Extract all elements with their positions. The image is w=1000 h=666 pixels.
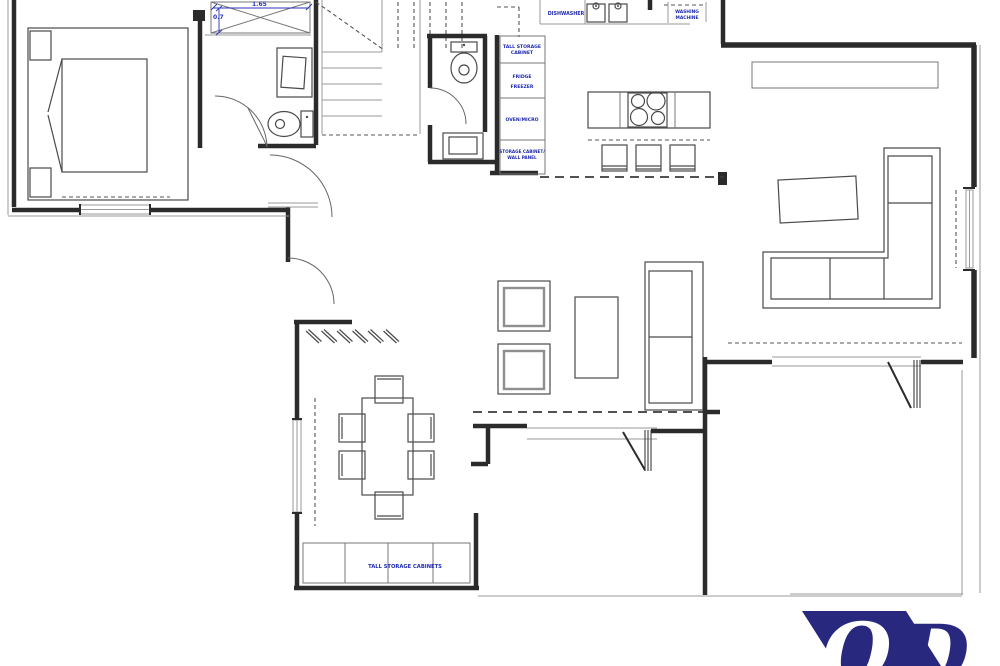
bathroom-walls bbox=[258, 0, 316, 146]
dining-door-arc bbox=[288, 258, 334, 304]
tall-storage-cabinets-row: TALL STORAGE CABINETS bbox=[303, 543, 470, 583]
chair bbox=[408, 414, 434, 442]
duvet bbox=[62, 59, 147, 172]
bar-stools bbox=[602, 145, 695, 171]
wc-walls bbox=[427, 36, 497, 162]
two-seat-sofa bbox=[645, 262, 703, 410]
threshold bbox=[268, 203, 318, 207]
sideboard bbox=[752, 62, 938, 88]
logo: O D bbox=[790, 594, 969, 666]
label-fridge-1: FRIDGE bbox=[512, 74, 531, 80]
pillow bbox=[30, 31, 51, 60]
bedroom-window bbox=[80, 204, 150, 215]
floor-plan-drawing: 1.65 0.7 bbox=[0, 0, 1000, 666]
toilet-ensuite bbox=[268, 111, 313, 137]
pillow bbox=[30, 168, 51, 197]
chair bbox=[339, 414, 365, 442]
wall-corner-block bbox=[718, 172, 727, 185]
label-storage-wall-1: STORAGE CABINET/ bbox=[499, 149, 545, 154]
ensuite-bathroom: 1.65 0.7 bbox=[205, 0, 316, 147]
living-room-walls bbox=[721, 45, 976, 358]
coffee-table bbox=[778, 176, 858, 223]
living-room bbox=[703, 45, 980, 593]
label-fridge-2: FREEZER bbox=[511, 84, 534, 90]
vanity-basin bbox=[277, 48, 312, 97]
lounge-seating bbox=[473, 262, 706, 412]
dining-walls bbox=[294, 322, 488, 590]
staircase bbox=[316, 0, 462, 135]
radiator-hatching bbox=[306, 330, 399, 344]
logo-letter-o: O bbox=[822, 605, 892, 666]
armchair bbox=[498, 344, 550, 394]
open-door-leaf bbox=[888, 362, 911, 408]
hall-door-arc bbox=[270, 155, 332, 217]
side-table bbox=[575, 297, 618, 378]
wc-door bbox=[430, 88, 466, 124]
bedroom bbox=[8, 0, 289, 262]
label-dishwasher: DISHWASHER bbox=[548, 11, 585, 17]
logo-letter-d: D bbox=[898, 607, 969, 666]
wall-notch bbox=[193, 10, 205, 21]
stair-treads bbox=[322, 52, 382, 116]
hall bbox=[268, 155, 334, 304]
bedroom-wall-face-lines bbox=[8, 0, 289, 216]
chair bbox=[339, 451, 365, 479]
corner-sofa bbox=[763, 148, 940, 308]
kitchen: DISHWASHER WASHING MACHINE TALL STORAGE … bbox=[490, 0, 727, 185]
dining-area: TALL STORAGE CABINETS bbox=[292, 322, 488, 590]
patio-bifold-doors bbox=[703, 357, 963, 408]
chair bbox=[375, 492, 403, 519]
wc bbox=[427, 36, 497, 162]
dining-table bbox=[362, 398, 413, 495]
bedroom-walls bbox=[12, 0, 288, 262]
wc-basin bbox=[443, 133, 483, 159]
tall-units-column: TALL STORAGE CABINET FRIDGE FREEZER OVEN… bbox=[499, 36, 545, 174]
label-storage-wall-2: WALL PANEL bbox=[507, 155, 537, 160]
kitchen-island bbox=[588, 92, 710, 140]
patio-sliding-door bbox=[473, 426, 706, 471]
label-tall-storage-2: CABINET bbox=[511, 50, 534, 56]
label-washing-machine-2: MACHINE bbox=[676, 15, 699, 21]
chair bbox=[375, 376, 403, 403]
double-bed bbox=[28, 28, 188, 200]
floor-plan-page: 1.65 0.7 bbox=[0, 0, 1000, 666]
living-room-window bbox=[956, 188, 975, 270]
chair bbox=[408, 451, 434, 479]
label-oven-micro: OVEN/MICRO bbox=[505, 117, 538, 123]
dim-shower-width: 1.65 bbox=[252, 1, 267, 8]
label-tall-storage-cabinets: TALL STORAGE CABINETS bbox=[368, 564, 442, 570]
toilet-wc bbox=[451, 42, 477, 83]
label-washing-machine-1: WASHING bbox=[675, 9, 699, 15]
bathroom-door bbox=[215, 96, 267, 147]
kitchen-sink bbox=[587, 3, 627, 22]
open-door-leaf bbox=[623, 432, 645, 470]
dim-shower-depth: 0.7 bbox=[213, 14, 224, 21]
armchair bbox=[498, 281, 550, 331]
label-tall-storage-1: TALL STORAGE bbox=[503, 44, 541, 50]
